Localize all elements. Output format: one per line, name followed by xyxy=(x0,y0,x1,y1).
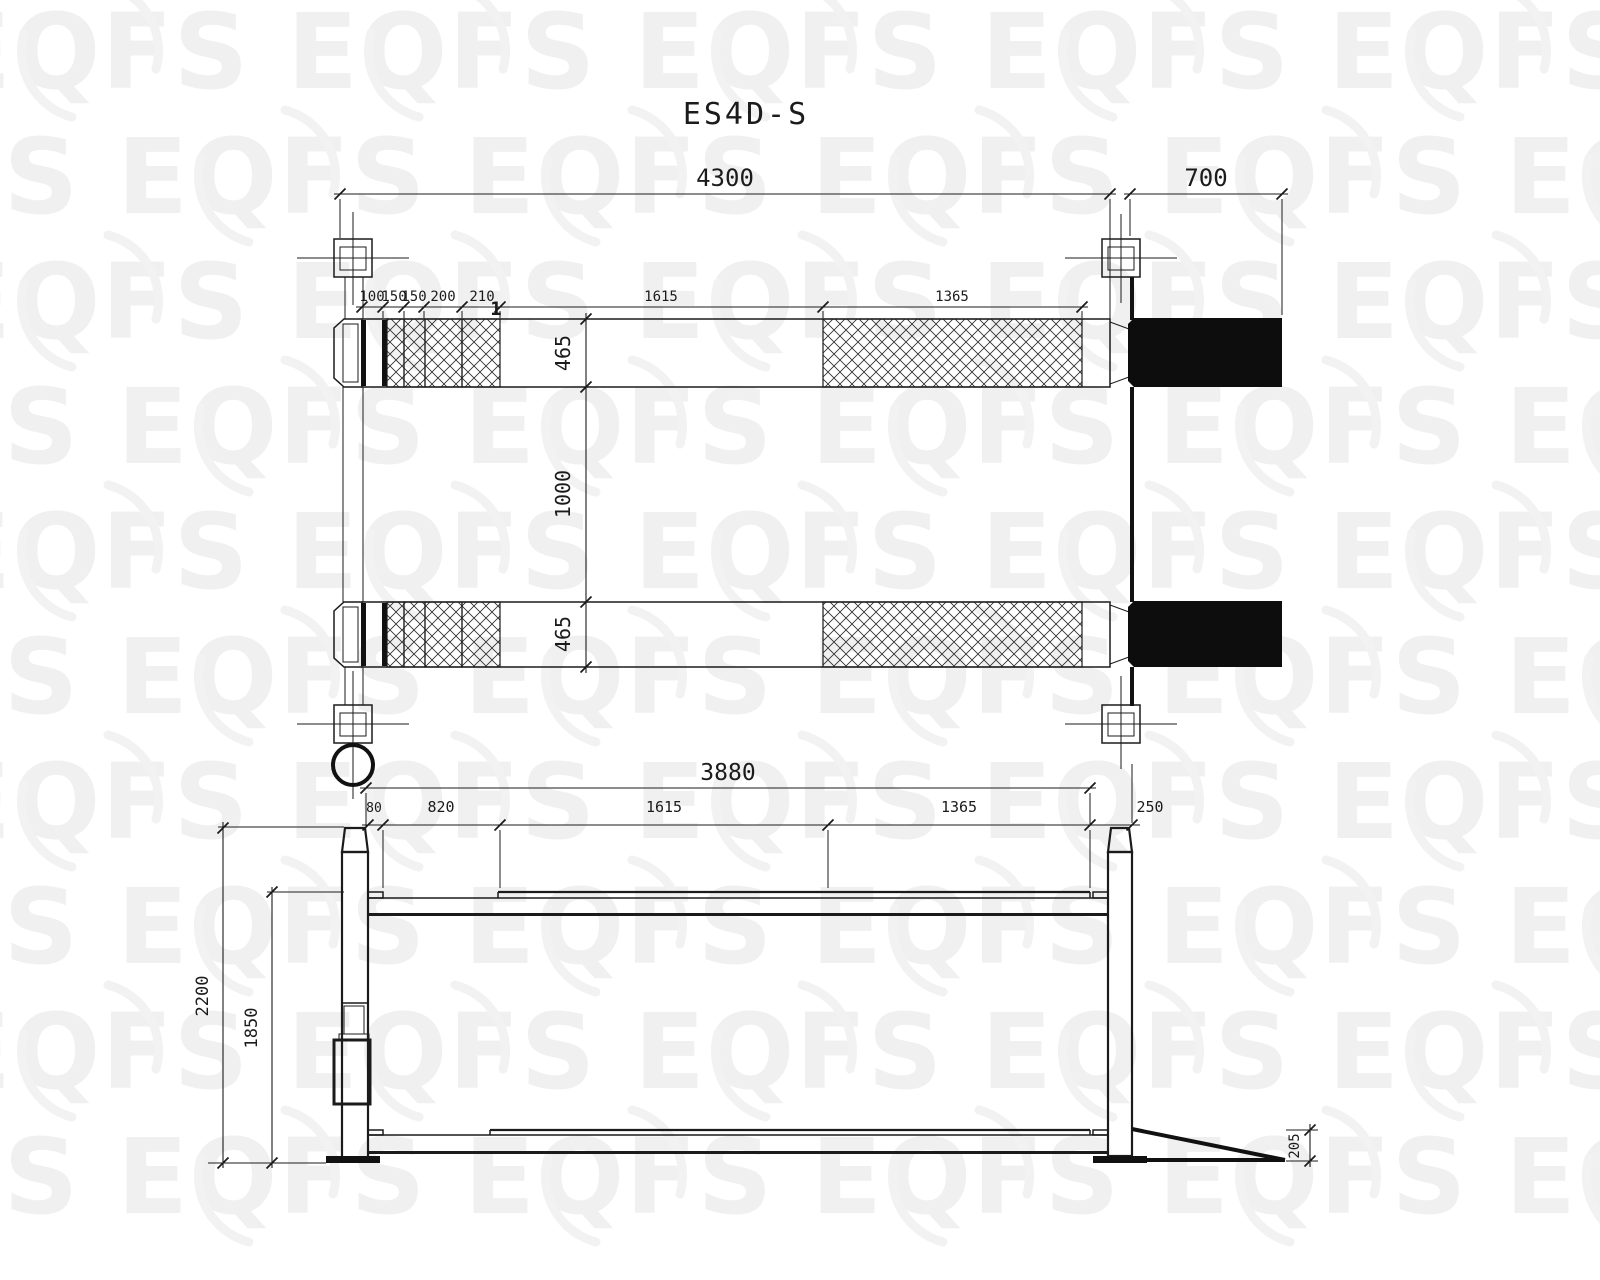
watermark-text: EQFS xyxy=(634,491,943,613)
dim-1850-label: 1850 xyxy=(242,1008,262,1049)
watermark-text: EQFS xyxy=(464,866,773,988)
watermark-text: EQFS xyxy=(1328,991,1600,1113)
dim-250-label: 250 xyxy=(1136,798,1163,816)
dim-1615-top-label: 1615 xyxy=(644,289,678,305)
watermark-text: EQFS xyxy=(1328,741,1600,863)
dim-4300-label: 4300 xyxy=(696,164,754,192)
watermark-text: EQFS xyxy=(0,366,79,488)
watermark-text: EQFS xyxy=(981,0,1290,113)
watermark-text: EQFS xyxy=(0,616,79,738)
watermark-text: EQFS xyxy=(464,616,773,738)
dim-1365-side-label: 1365 xyxy=(941,798,977,816)
watermark-text: EQFS xyxy=(1328,491,1600,613)
drawing-title: ES4D-S xyxy=(683,97,809,132)
watermark-text: EQFS xyxy=(287,491,596,613)
dim-3880-label: 3880 xyxy=(700,760,755,786)
dim-1615-side-label: 1615 xyxy=(646,798,682,816)
section-callout-1: 1 xyxy=(490,298,501,320)
dim-700-label: 700 xyxy=(1184,164,1227,192)
drive-on-ramp-plan-left xyxy=(1128,318,1282,387)
dim-1000-label: 1000 xyxy=(551,470,575,518)
watermark-text: EQFS xyxy=(1158,866,1467,988)
dim-2200-label: 2200 xyxy=(193,976,213,1017)
technical-drawing-page: EQFSEQFSEQFSEQFSEQFSEQFSEQFSEQFSEQFSEQFS… xyxy=(0,0,1600,1280)
dim-820-label: 820 xyxy=(427,798,454,816)
base-plate-left xyxy=(326,1156,380,1163)
watermark-text: EQFS xyxy=(0,1116,79,1238)
watermark-text: EQFS xyxy=(287,0,596,113)
top-view: ES4D-S 4300 700 xyxy=(297,97,1288,799)
watermark-text: EQFS xyxy=(981,491,1290,613)
watermark-text: EQFS xyxy=(0,116,79,238)
lift-drawing-svg: EQFSEQFSEQFSEQFSEQFSEQFSEQFSEQFSEQFSEQFS… xyxy=(0,0,1600,1280)
watermark-text: EQFS xyxy=(117,616,426,738)
watermark-text: EQFS xyxy=(1328,0,1600,113)
dim-1365-top-label: 1365 xyxy=(935,289,969,305)
dim-465-front-label: 465 xyxy=(551,335,575,371)
dim-200-label: 200 xyxy=(430,289,455,305)
watermark-text: EQFS xyxy=(981,991,1290,1113)
watermark-text: EQFS xyxy=(811,116,1120,238)
watermark-text: EQFS xyxy=(1158,1116,1467,1238)
watermark-layer: EQFSEQFSEQFSEQFSEQFSEQFSEQFSEQFSEQFSEQFS… xyxy=(0,0,1600,1242)
dim-80-label: 80 xyxy=(366,801,382,816)
drive-on-ramp-plan-right xyxy=(1128,601,1282,667)
watermark-text: EQFS xyxy=(0,866,79,988)
watermark-text: EQFS xyxy=(634,991,943,1113)
dim-465-rear-label: 465 xyxy=(551,616,575,652)
dim-205-label: 205 xyxy=(1287,1133,1303,1158)
watermark-text: EQFS xyxy=(117,116,426,238)
watermark-text: EQFS xyxy=(1328,241,1600,363)
watermark-text: EQFS xyxy=(811,866,1120,988)
watermark-text: EQFS xyxy=(117,366,426,488)
watermark-text: EQFS xyxy=(464,366,773,488)
dim-150b-label: 150 xyxy=(401,289,426,305)
base-plate-right xyxy=(1093,1156,1147,1163)
